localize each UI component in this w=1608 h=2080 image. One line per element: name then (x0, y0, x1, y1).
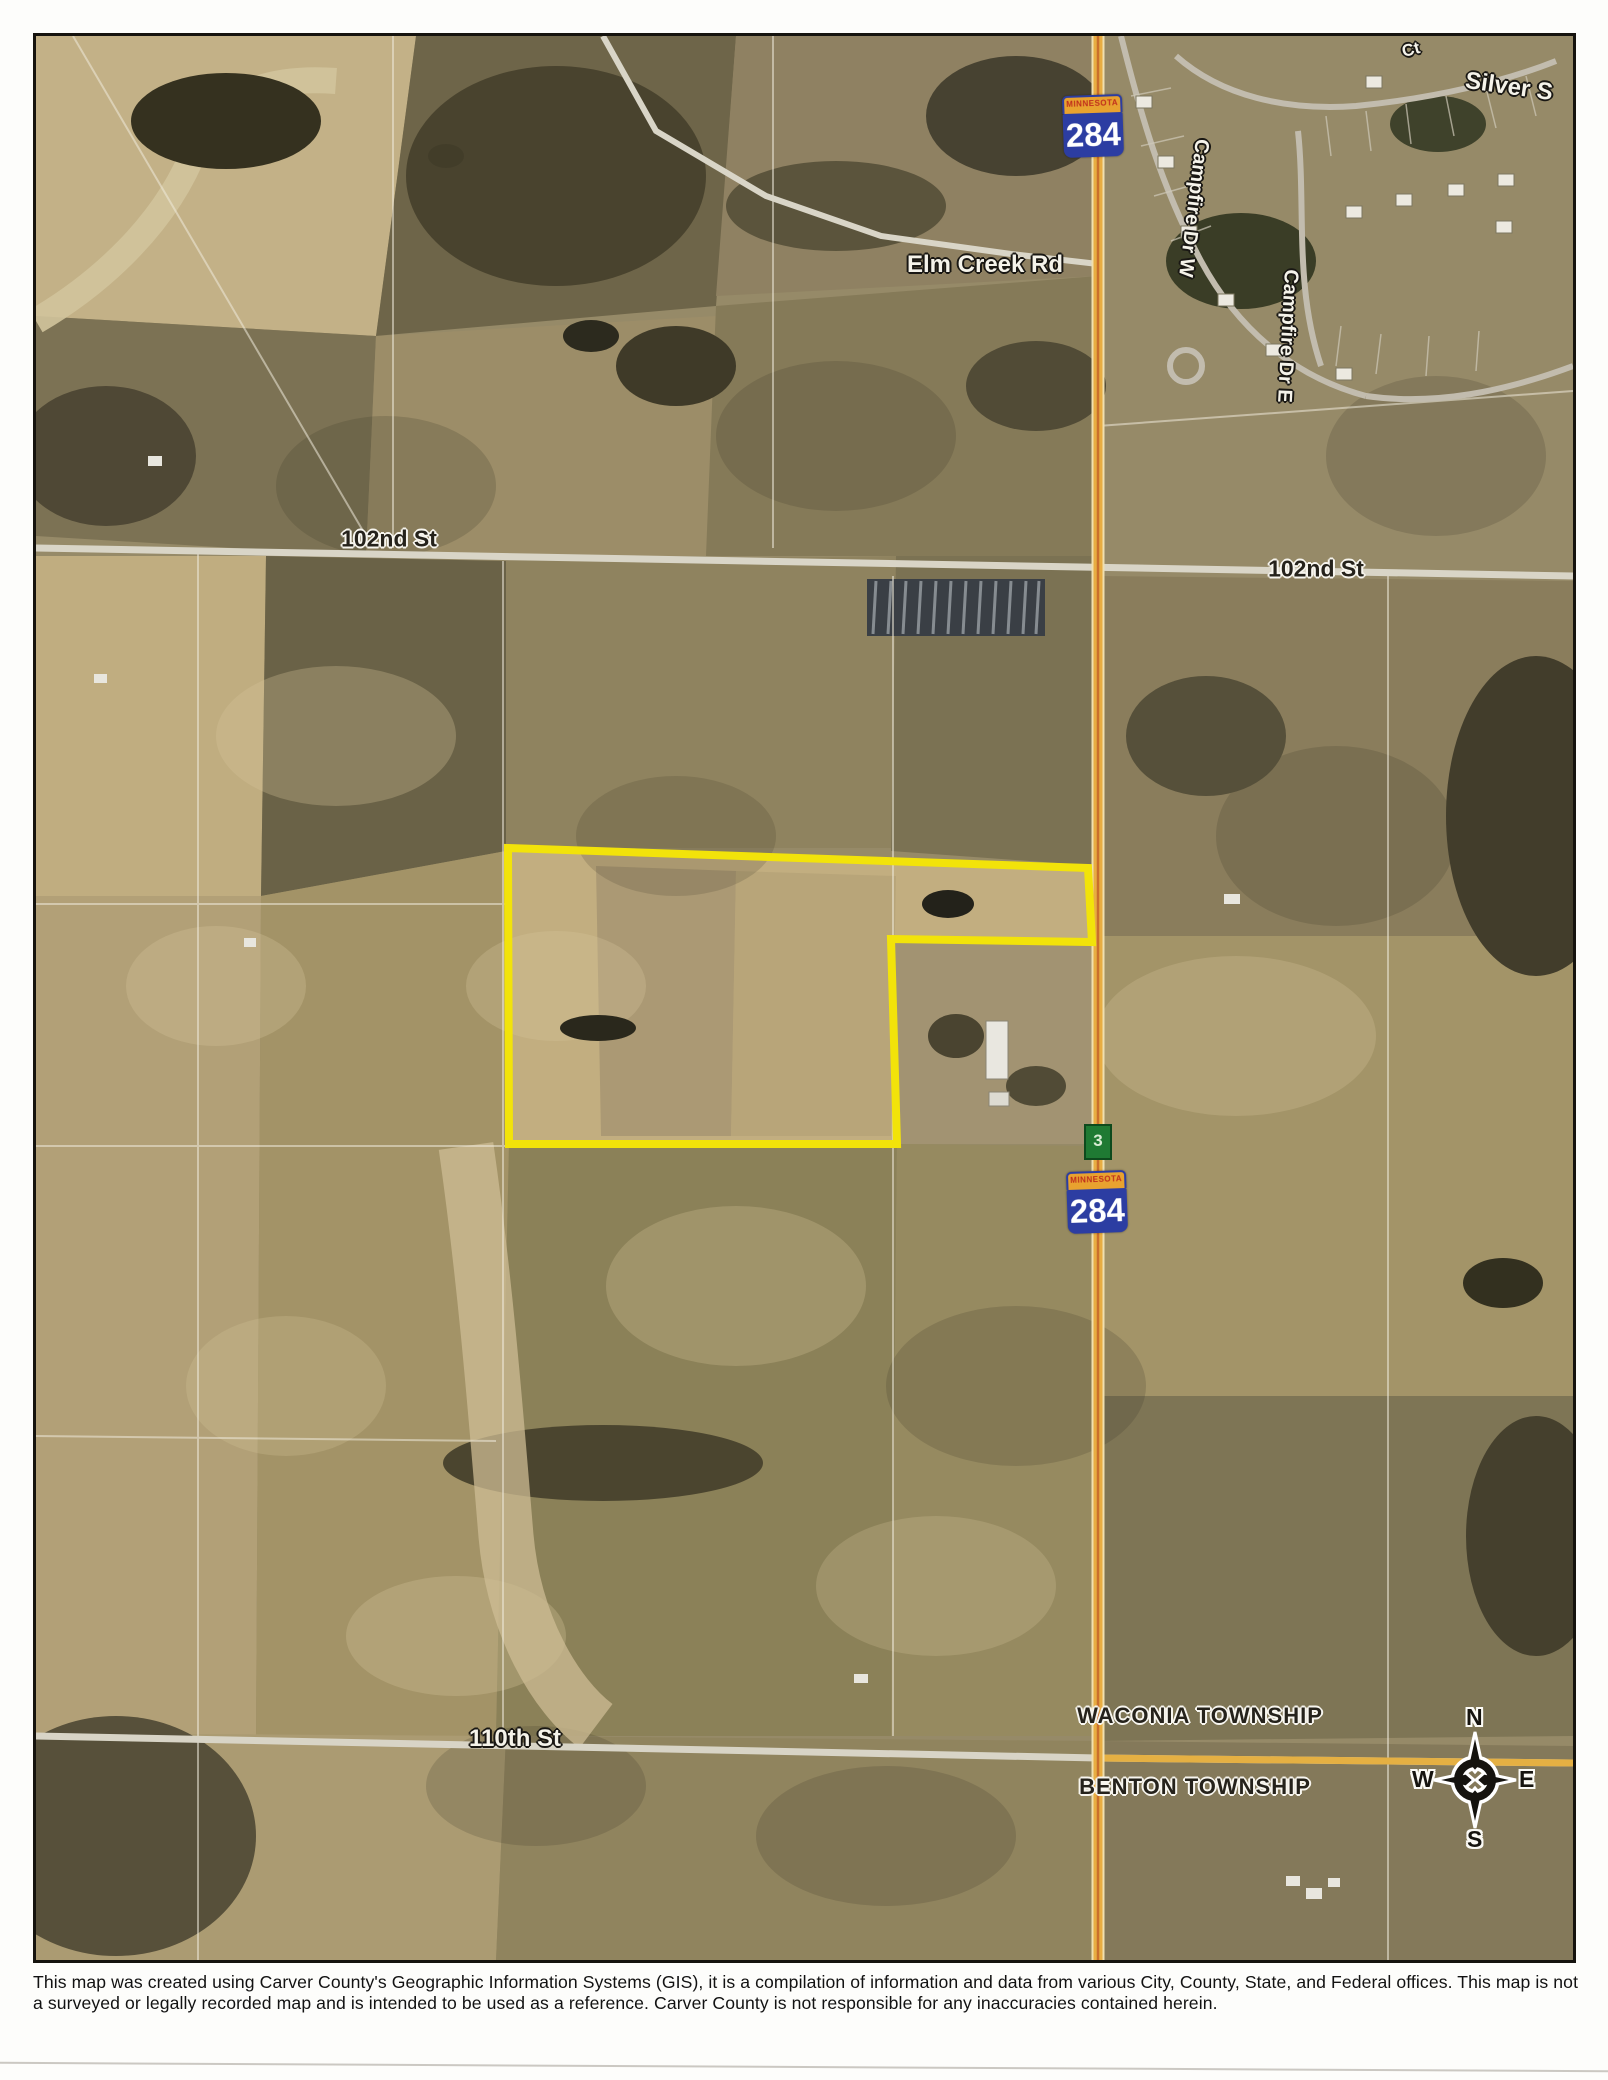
shield-number: 284 (1063, 112, 1124, 158)
compass-rose: N S W E (1410, 1704, 1540, 1852)
compass-west: W (1412, 1766, 1434, 1793)
scan-artifact-line (0, 2062, 1608, 2072)
shield-banner-text: MINNESOTA (1066, 1170, 1127, 1190)
map-disclaimer: This map was created using Carver County… (33, 1972, 1585, 2014)
highway-shield-284-north: MINNESOTA 284 (1062, 94, 1124, 158)
mile-marker-sign: 3 (1084, 1124, 1112, 1160)
shield-banner-text: MINNESOTA (1062, 94, 1123, 114)
shield-number: 284 (1067, 1188, 1128, 1234)
scanned-map-page: Elm Creek Rd 102nd St 102nd St 110th St … (0, 0, 1608, 2080)
highway-shield-284-south: MINNESOTA 284 (1066, 1170, 1128, 1234)
compass-north: N (1466, 1704, 1483, 1731)
compass-east: E (1519, 1766, 1534, 1793)
compass-south: S (1467, 1826, 1482, 1853)
aerial-map: Elm Creek Rd 102nd St 102nd St 110th St … (33, 33, 1576, 1963)
aerial-imagery (36, 36, 1573, 1960)
